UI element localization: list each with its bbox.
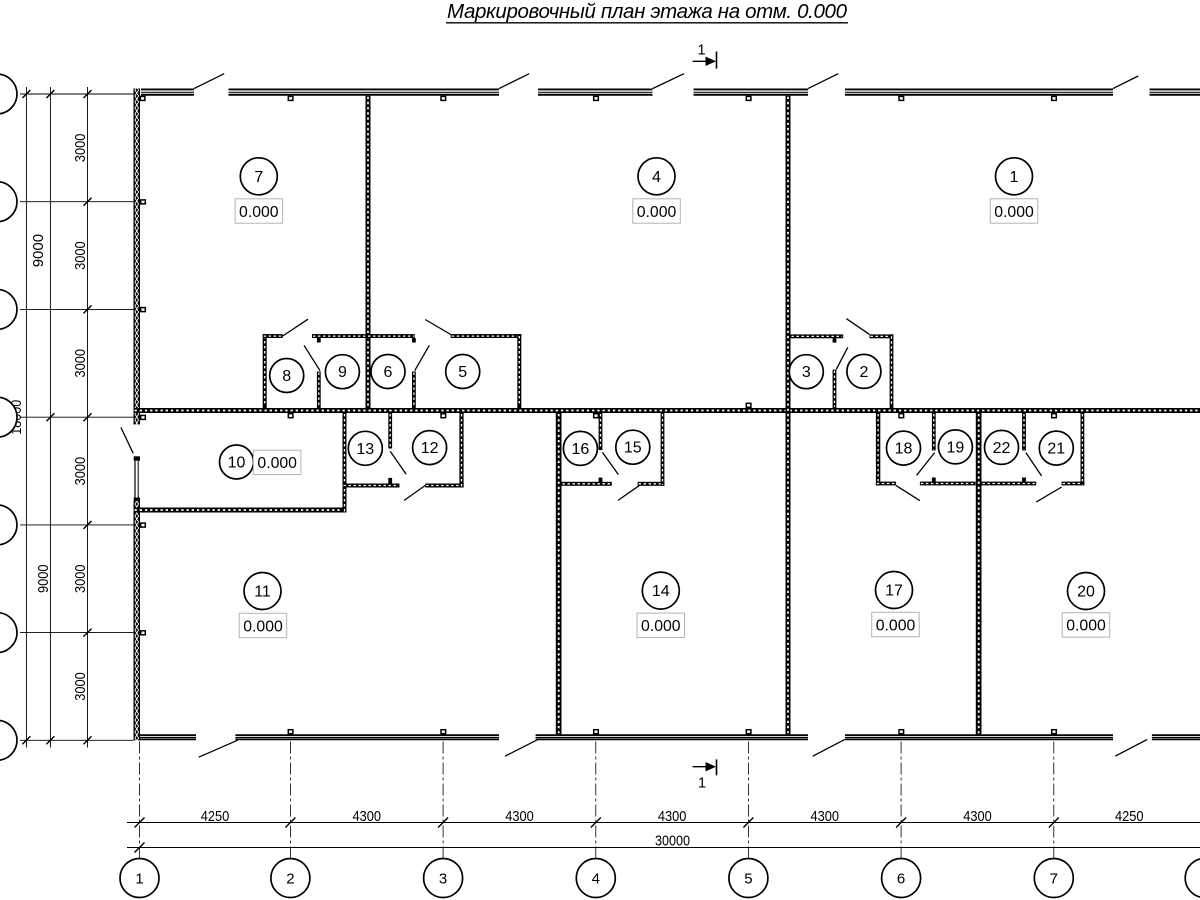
svg-text:11: 11 <box>254 584 271 601</box>
svg-text:1: 1 <box>135 871 143 888</box>
svg-text:6: 6 <box>384 364 393 381</box>
svg-text:22: 22 <box>993 440 1011 457</box>
svg-text:1: 1 <box>698 776 706 792</box>
svg-text:15: 15 <box>624 440 642 457</box>
svg-text:2: 2 <box>859 364 868 381</box>
svg-text:3000: 3000 <box>72 565 89 594</box>
svg-text:4250: 4250 <box>1115 808 1144 825</box>
svg-text:3000: 3000 <box>72 349 89 378</box>
svg-text:0.000: 0.000 <box>257 455 297 472</box>
svg-text:3: 3 <box>802 364 811 381</box>
svg-text:4300: 4300 <box>353 808 382 825</box>
svg-text:2: 2 <box>286 871 294 888</box>
svg-text:7: 7 <box>1050 871 1058 888</box>
svg-text:1: 1 <box>1010 169 1019 186</box>
svg-text:12: 12 <box>421 440 439 457</box>
svg-text:3000: 3000 <box>72 241 89 270</box>
svg-text:18: 18 <box>895 441 913 458</box>
svg-text:3: 3 <box>439 871 447 888</box>
svg-text:3000: 3000 <box>72 672 89 701</box>
svg-text:4300: 4300 <box>811 808 840 825</box>
svg-text:16: 16 <box>572 441 590 458</box>
svg-text:4250: 4250 <box>201 808 230 825</box>
svg-text:4300: 4300 <box>505 808 534 825</box>
svg-text:6: 6 <box>897 871 905 888</box>
svg-text:14: 14 <box>652 583 670 600</box>
svg-text:3000: 3000 <box>72 457 89 486</box>
svg-text:4: 4 <box>652 169 661 186</box>
svg-text:30000: 30000 <box>655 833 690 850</box>
svg-text:3000: 3000 <box>72 134 89 163</box>
svg-text:7: 7 <box>254 169 263 186</box>
svg-text:4300: 4300 <box>658 808 687 825</box>
svg-text:9: 9 <box>338 364 347 381</box>
svg-text:0.000: 0.000 <box>239 204 279 221</box>
svg-text:0.000: 0.000 <box>641 618 681 635</box>
svg-text:5: 5 <box>744 871 752 888</box>
svg-text:10: 10 <box>228 455 246 472</box>
svg-text:20: 20 <box>1077 584 1095 601</box>
svg-text:4300: 4300 <box>963 808 992 825</box>
svg-text:0.000: 0.000 <box>637 204 677 221</box>
svg-text:9000: 9000 <box>30 234 47 267</box>
svg-text:19: 19 <box>947 439 965 456</box>
svg-text:17: 17 <box>885 583 903 600</box>
svg-text:0.000: 0.000 <box>876 617 916 634</box>
svg-text:13: 13 <box>356 441 374 458</box>
svg-text:Маркировочный план этажа на от: Маркировочный план этажа на отм. 0.000 <box>447 0 848 23</box>
svg-text:1: 1 <box>697 43 705 59</box>
svg-text:0.000: 0.000 <box>994 204 1034 221</box>
svg-text:0.000: 0.000 <box>243 618 283 635</box>
svg-text:9000: 9000 <box>35 565 52 594</box>
svg-text:21: 21 <box>1047 441 1065 458</box>
svg-text:4: 4 <box>592 871 600 888</box>
svg-text:8: 8 <box>282 368 291 385</box>
svg-text:0.000: 0.000 <box>1066 618 1106 635</box>
svg-text:5: 5 <box>458 364 467 381</box>
